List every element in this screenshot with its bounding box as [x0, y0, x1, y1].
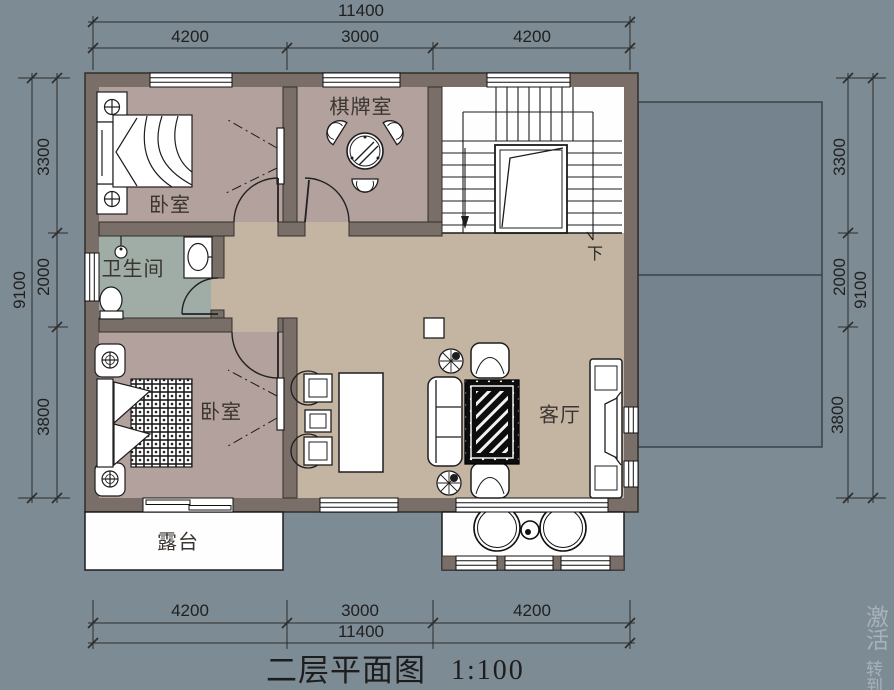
dim-right-seg-2: 2000: [830, 258, 850, 296]
window-bathroom: [85, 253, 99, 301]
dim-left-seg-1: 3300: [34, 138, 54, 176]
room-label-bedroom-bottom: 卧室: [200, 396, 242, 425]
armchair: [471, 463, 509, 498]
stair-well: [495, 145, 567, 233]
page-title: 二层平面图: [263, 645, 429, 690]
window-hall-south: [320, 498, 398, 512]
sofa-long: [428, 377, 462, 466]
dim-bottom-seg-3: 4200: [513, 601, 551, 621]
hall-column: [424, 318, 444, 338]
potted-plant: [437, 471, 461, 495]
title-block: 二层平面图 1:100: [263, 645, 525, 690]
rug: [465, 380, 519, 464]
watermark-line-1: 激活: [866, 606, 894, 652]
dim-left-overall: 9100: [10, 271, 30, 309]
toilet: [100, 287, 123, 319]
nightstand: [95, 344, 125, 377]
watermark-line-2: 转到: [866, 661, 894, 690]
room-label-bedroom-top: 卧室: [149, 189, 191, 218]
room-label-chess-room: 棋牌室: [330, 91, 393, 120]
room-label-living-room: 客厅: [539, 399, 581, 428]
side-table-small: [305, 410, 331, 432]
room-label-terrace: 露台: [157, 526, 199, 555]
tv-cabinet: [590, 359, 622, 498]
dim-top-seg-1: 4200: [171, 27, 209, 47]
dim-bottom-seg-2: 3000: [341, 601, 379, 621]
nightstand: [95, 463, 125, 496]
scale-label: 1:100: [451, 655, 525, 687]
bay-small-pot: [521, 521, 539, 539]
room-label-bathroom: 卫生间: [102, 253, 165, 282]
dim-bottom-seg-1: 4200: [171, 601, 209, 621]
nightstand: [97, 184, 127, 214]
sliding-door-terrace: [143, 498, 233, 512]
dim-bottom-overall: 11400: [338, 622, 384, 642]
bed: [97, 115, 192, 187]
potted-plant: [439, 349, 463, 373]
window-stair-hall: [487, 73, 570, 87]
armchair: [471, 343, 509, 378]
dim-left-seg-3: 3800: [34, 398, 54, 436]
sink: [184, 237, 212, 278]
dim-right-seg-1: 3300: [830, 138, 850, 176]
round-table: [347, 133, 383, 169]
dim-right-overall: 9100: [851, 271, 871, 309]
opening-living-bay: [456, 498, 608, 512]
floor-plan-canvas: 卧室 棋牌室 卫生间 卧室 客厅 露台 下 11400 4200 3000 42…: [0, 0, 894, 690]
dim-left-seg-2: 2000: [34, 258, 54, 296]
dim-top-seg-2: 3000: [341, 27, 379, 47]
stair-down-label: 下: [587, 240, 603, 264]
dim-right-seg-3: 3800: [828, 396, 848, 434]
bed: [97, 379, 192, 467]
dim-top-seg-3: 4200: [513, 27, 551, 47]
watermark: 激活 转到: [866, 606, 894, 690]
window-chess-room: [323, 73, 400, 87]
dining-table: [339, 373, 383, 472]
window-living-east-1: [624, 407, 638, 433]
window-bedroom-top: [150, 73, 232, 87]
bay-window-area: [442, 505, 624, 570]
dim-top-overall: 11400: [338, 1, 384, 21]
floor-plan-drawing: [0, 0, 894, 690]
lower-roof-outline: [638, 102, 822, 447]
window-living-east-2: [624, 461, 638, 487]
